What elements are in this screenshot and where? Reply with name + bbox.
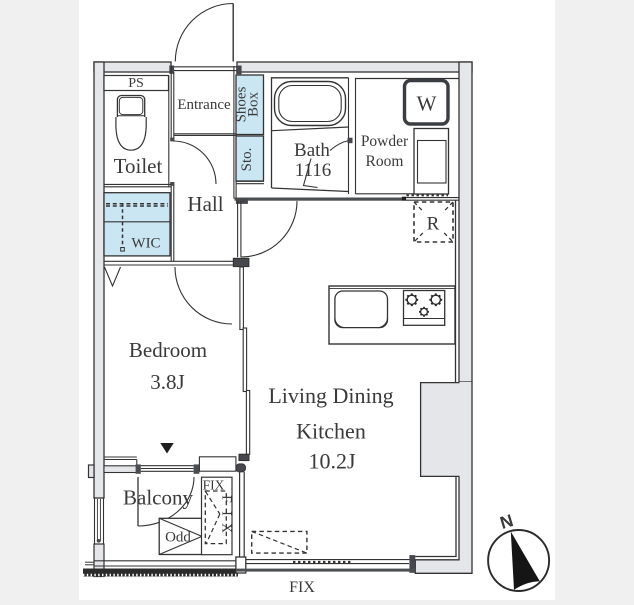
svg-text:Odd: Odd: [165, 530, 191, 546]
svg-text:I: I: [220, 511, 235, 516]
svg-text:Room: Room: [366, 153, 404, 170]
svg-text:10.2J: 10.2J: [308, 449, 356, 474]
svg-text:F: F: [220, 495, 235, 503]
svg-text:PS: PS: [128, 76, 144, 91]
svg-text:Powder: Powder: [361, 133, 409, 150]
svg-text:1116: 1116: [295, 160, 332, 181]
svg-text:Toilet: Toilet: [114, 154, 163, 178]
svg-text:Bath: Bath: [294, 140, 330, 161]
svg-text:Living Dining: Living Dining: [268, 383, 393, 408]
svg-text:Entrance: Entrance: [177, 97, 231, 113]
svg-text:W: W: [417, 92, 437, 116]
svg-text:Sto.: Sto.: [239, 148, 255, 172]
svg-text:WIC: WIC: [131, 236, 160, 252]
svg-text:Hall: Hall: [187, 192, 223, 216]
svg-text:3.8J: 3.8J: [150, 370, 184, 394]
svg-text:Box: Box: [246, 92, 262, 118]
svg-text:Bedroom: Bedroom: [129, 338, 207, 362]
svg-text:Kitchen: Kitchen: [296, 419, 366, 444]
svg-text:FIX: FIX: [289, 579, 315, 596]
svg-text:R: R: [427, 214, 440, 235]
svg-text:FIX: FIX: [203, 478, 225, 493]
svg-text:Balcony: Balcony: [123, 486, 193, 510]
svg-text:X: X: [220, 523, 235, 533]
